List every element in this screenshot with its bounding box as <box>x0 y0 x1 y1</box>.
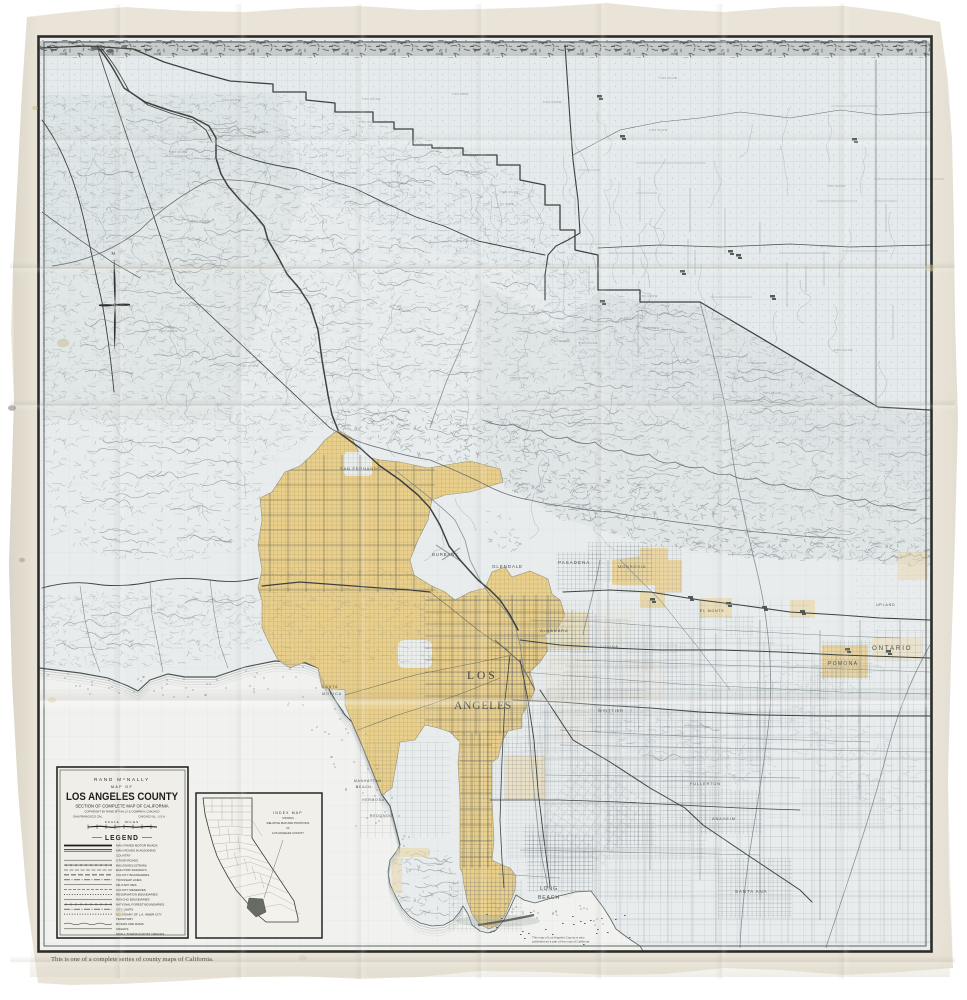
svg-text:T3N R17W: T3N R17W <box>624 316 643 320</box>
svg-text:T3N R14W: T3N R14W <box>174 110 193 114</box>
svg-text:ALHAMBRA: ALHAMBRA <box>540 628 568 633</box>
svg-text:T5N R18W: T5N R18W <box>510 376 529 380</box>
svg-text:SANTA ANA: SANTA ANA <box>735 889 768 894</box>
svg-text:T8N R11W: T8N R11W <box>763 391 782 395</box>
svg-text:ONTARIO: ONTARIO <box>872 645 912 652</box>
svg-text:T3N R8W: T3N R8W <box>643 326 660 330</box>
svg-text:UPLAND: UPLAND <box>876 603 895 607</box>
svg-text:T3N R12W: T3N R12W <box>169 150 188 154</box>
svg-text:T3N R16W: T3N R16W <box>639 294 658 298</box>
svg-text:T2N R16W: T2N R16W <box>543 100 562 104</box>
svg-text:BURBANK: BURBANK <box>432 552 459 557</box>
svg-text:SHOWING: SHOWING <box>282 817 294 820</box>
svg-text:T3N R10W: T3N R10W <box>649 128 668 132</box>
svg-text:T3N R11W: T3N R11W <box>659 76 678 80</box>
svg-text:T9N R13W: T9N R13W <box>457 239 476 243</box>
svg-text:MONROVIA: MONROVIA <box>618 564 646 569</box>
svg-text:RELATIVE MAP AND POSITIONS: RELATIVE MAP AND POSITIONS <box>267 821 310 825</box>
svg-text:BEACH: BEACH <box>538 895 560 901</box>
svg-text:SAN FRANCISCO CAL.: SAN FRANCISCO CAL. <box>73 815 103 819</box>
svg-text:T2N R15W: T2N R15W <box>159 329 178 333</box>
svg-text:T5N R12W: T5N R12W <box>177 296 196 300</box>
svg-text:T7N R9W: T7N R9W <box>497 202 514 206</box>
svg-text:INDEX MAP: INDEX MAP <box>273 811 302 815</box>
svg-text:PASADENA: PASADENA <box>558 560 590 566</box>
svg-text:T7N R10W: T7N R10W <box>748 361 767 365</box>
svg-text:CHICAGO ILL. U.S.A.: CHICAGO ILL. U.S.A. <box>138 815 166 819</box>
svg-text:published as a part of the map: published as a part of the map of Califo… <box>532 940 590 944</box>
svg-text:OF: OF <box>286 827 290 830</box>
svg-text:T3N R11W: T3N R11W <box>818 244 837 248</box>
svg-text:T2N R10W: T2N R10W <box>551 339 570 343</box>
svg-text:LOS ANGELES COUNTY: LOS ANGELES COUNTY <box>272 831 304 835</box>
svg-text:GLENDALE: GLENDALE <box>492 564 523 569</box>
svg-text:REDONDO: REDONDO <box>370 814 393 818</box>
svg-text:T9N R14W: T9N R14W <box>500 190 519 194</box>
svg-text:T4N R8W: T4N R8W <box>452 92 469 96</box>
svg-text:T4N R13W: T4N R13W <box>191 219 210 223</box>
svg-text:LONG: LONG <box>540 886 558 892</box>
svg-text:T8N R18W: T8N R18W <box>206 157 225 161</box>
